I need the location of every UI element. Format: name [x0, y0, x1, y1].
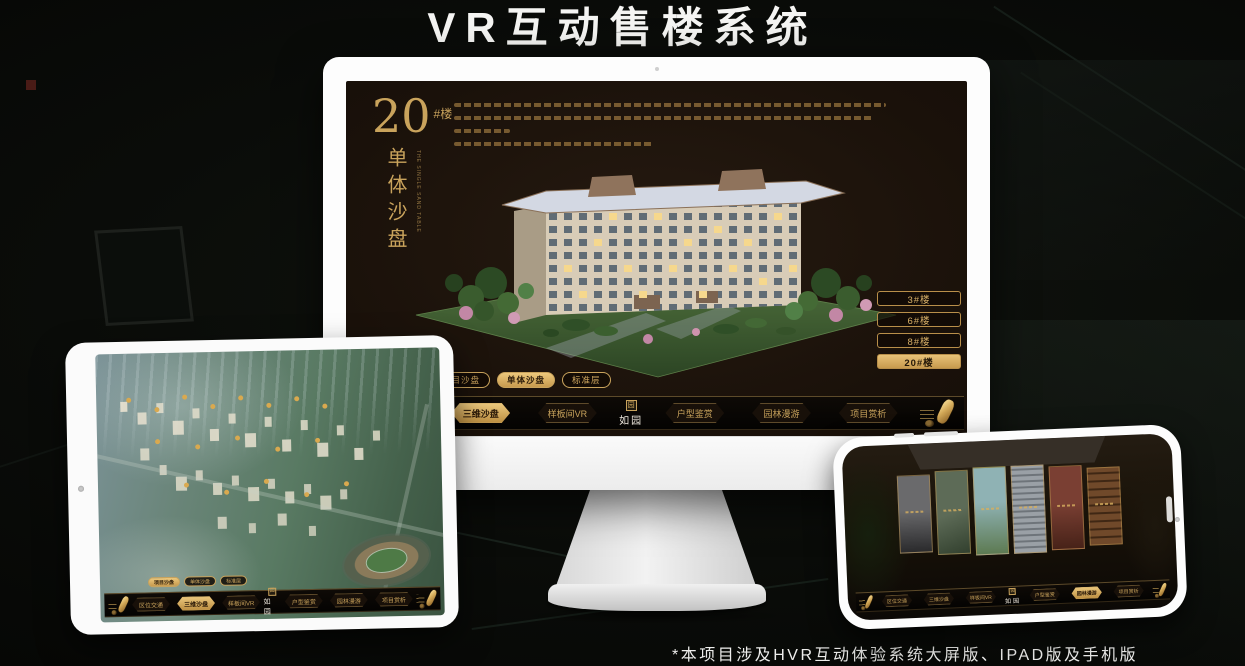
nav-item-showroom-vr[interactable]: 样板间VR: [963, 591, 999, 604]
ruyuan-logo: 园 如园: [619, 400, 643, 427]
promo-stage: VR互动售楼系统 20 #楼 单体沙盘 THE SINGLE SAND TABL…: [0, 0, 1245, 666]
tab-single-sandtable[interactable]: 单体沙盘: [497, 372, 555, 388]
tablet-device: 项目沙盘 单体沙盘 标准层 区位交通 三维沙盘 样板间VR 园 如园 户型鉴赏 …: [65, 335, 459, 635]
floor-button-3[interactable]: 3#楼: [877, 291, 961, 306]
phone-volume-button: [924, 431, 958, 436]
ruyuan-logo: 园 如园: [1004, 587, 1021, 605]
scene-panel[interactable]: [1048, 465, 1084, 550]
logo-seal-icon: 园: [626, 400, 637, 411]
monitor-stand-neck: [556, 490, 756, 586]
scene-panel[interactable]: [934, 470, 970, 555]
page-title: VR互动售楼系统: [0, 0, 1245, 56]
scroll-menu-icon[interactable]: [1152, 582, 1167, 598]
tablet-screen: 项目沙盘 单体沙盘 标准层 区位交通 三维沙盘 样板间VR 园 如园 户型鉴赏 …: [95, 347, 445, 622]
nav-item-unit-plans[interactable]: 户型鉴赏: [1027, 588, 1063, 601]
tablet-camera-icon: [78, 486, 84, 492]
scroll-menu-icon[interactable]: [108, 595, 128, 614]
nav-item-3d-sandtable[interactable]: 三维沙盘: [921, 592, 957, 605]
scene-panel[interactable]: [972, 466, 1009, 555]
monitor-stand-base: [548, 584, 766, 611]
aerial-city-band: [95, 347, 441, 461]
description-line: [454, 116, 873, 120]
tab-standard-floor[interactable]: 标准层: [562, 372, 611, 388]
floor-button-20[interactable]: 20#楼: [877, 354, 961, 369]
nav-item-garden-tour[interactable]: 园林漫游: [747, 403, 817, 423]
building-markers[interactable]: [126, 398, 131, 403]
nav-item-showroom-vr[interactable]: 样板间VR: [218, 595, 263, 610]
phone-volume-button: [894, 433, 914, 438]
scene-panel[interactable]: [1086, 466, 1122, 545]
building-render: [396, 133, 916, 383]
logo-text: 如园: [264, 596, 282, 616]
bg-aerial-patch: [975, 60, 1245, 280]
nav-item-location[interactable]: 区位交通: [879, 594, 915, 607]
stadium-render: [340, 529, 434, 593]
aerial-masterplan-render: [120, 402, 127, 412]
ruyuan-logo: 园 如园: [263, 587, 281, 616]
scroll-menu-icon[interactable]: [416, 589, 436, 608]
nav-item-project-gallery[interactable]: 项目赏析: [371, 592, 416, 607]
nav-item-project-gallery[interactable]: 项目赏析: [1110, 584, 1146, 597]
bg-logo-mark: [26, 80, 36, 90]
logo-text: 如园: [1005, 595, 1021, 605]
description-line: [454, 103, 886, 107]
nav-item-3d-sandtable[interactable]: 三维沙盘: [446, 403, 516, 423]
floor-button-6[interactable]: 6#楼: [877, 312, 961, 327]
nav-item-project-gallery[interactable]: 项目赏析: [833, 403, 903, 423]
phone-camera-icon: [1175, 517, 1180, 522]
logo-seal-icon: 园: [268, 587, 276, 595]
nav-item-3d-sandtable[interactable]: 三维沙盘: [173, 596, 218, 611]
webcam-icon: [655, 67, 659, 71]
nav-item-unit-plans[interactable]: 户型鉴赏: [660, 403, 730, 423]
floor-button-8[interactable]: 8#楼: [877, 333, 961, 348]
scroll-menu-icon[interactable]: [859, 594, 874, 610]
block-unit: #楼: [434, 105, 453, 122]
footnote: *本项目涉及HVR互动体验系统大屏版、IPAD版及手机版: [672, 641, 1138, 665]
floor-button-group: 3#楼 6#楼 8#楼 20#楼: [877, 291, 961, 369]
scene-gallery: [843, 457, 1177, 563]
nav-item-showroom-vr[interactable]: 样板间VR: [532, 403, 602, 423]
nav-item-location[interactable]: 区位交通: [128, 597, 173, 612]
tab-project-sandtable[interactable]: 项目沙盘: [148, 577, 180, 588]
phone-device: 区位交通 三维沙盘 样板间VR 园 如园 户型鉴赏 园林漫游 项目赏析: [832, 424, 1188, 630]
tab-single-sandtable[interactable]: 单体沙盘: [184, 576, 216, 587]
tab-standard-floor[interactable]: 标准层: [220, 575, 247, 586]
phone-screen: 区位交通 三维沙盘 样板间VR 园 如园 户型鉴赏 园林漫游 项目赏析: [842, 433, 1179, 621]
bg-road-line: [1020, 72, 1245, 281]
nav-item-unit-plans[interactable]: 户型鉴赏: [281, 594, 326, 609]
logo-seal-icon: 园: [1009, 587, 1016, 594]
scroll-menu-icon[interactable]: [920, 399, 954, 427]
monitor-tab-row: 项目沙盘 单体沙盘 标准层: [432, 372, 611, 388]
nav-item-garden-tour[interactable]: 园林漫游: [1069, 586, 1105, 599]
nav-item-garden-tour[interactable]: 园林漫游: [326, 593, 371, 608]
tablet-tab-row: 项目沙盘 单体沙盘 标准层: [148, 575, 247, 587]
scene-panel[interactable]: [1010, 465, 1047, 554]
logo-text: 如园: [619, 412, 643, 427]
bg-award-plaque: [94, 226, 194, 326]
scene-panel[interactable]: [896, 474, 932, 553]
